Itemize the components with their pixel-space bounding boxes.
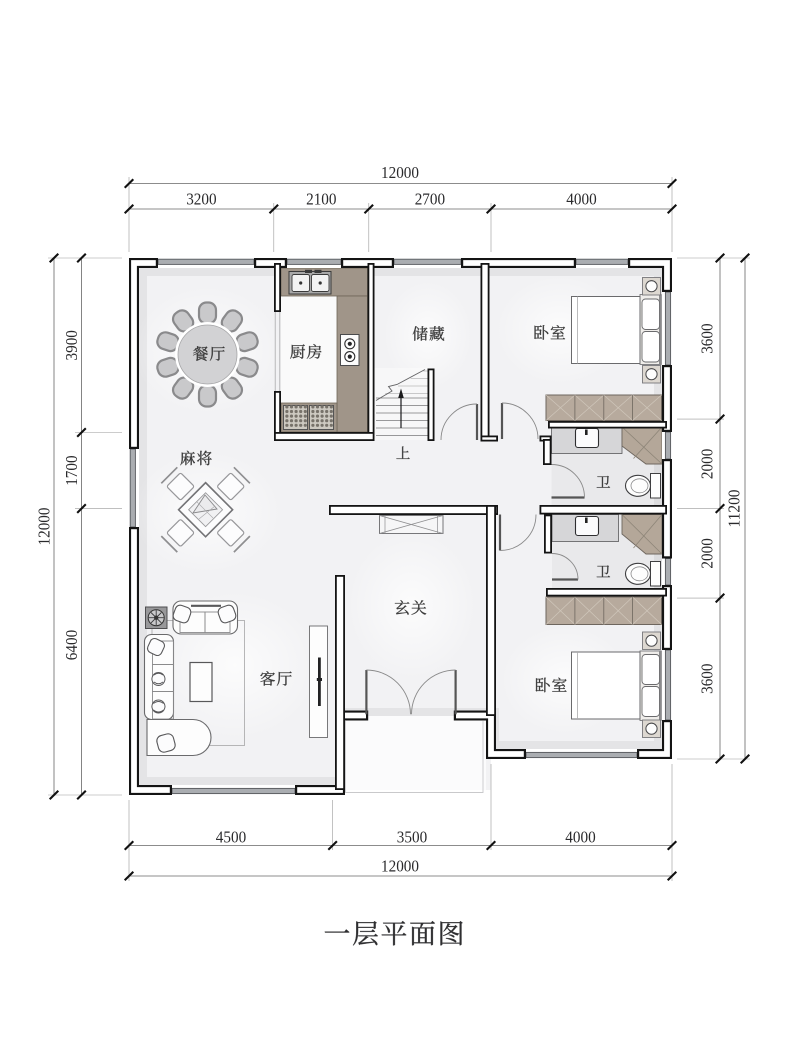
svg-text:2000: 2000 xyxy=(698,538,717,568)
svg-text:3600: 3600 xyxy=(698,664,717,694)
svg-text:3900: 3900 xyxy=(62,330,81,360)
svg-text:11200: 11200 xyxy=(725,490,744,528)
svg-text:12000: 12000 xyxy=(381,163,419,182)
svg-text:2700: 2700 xyxy=(415,190,445,209)
svg-text:12000: 12000 xyxy=(35,508,54,546)
svg-text:3600: 3600 xyxy=(698,323,717,353)
svg-text:6400: 6400 xyxy=(62,630,81,660)
svg-text:12000: 12000 xyxy=(381,857,419,876)
svg-text:4000: 4000 xyxy=(566,190,596,209)
svg-text:4500: 4500 xyxy=(216,828,246,847)
svg-text:4000: 4000 xyxy=(565,828,595,847)
svg-text:2100: 2100 xyxy=(306,190,336,209)
svg-text:2000: 2000 xyxy=(698,449,717,479)
svg-text:3500: 3500 xyxy=(397,828,427,847)
svg-text:3200: 3200 xyxy=(186,190,216,209)
svg-text:1700: 1700 xyxy=(62,455,81,485)
